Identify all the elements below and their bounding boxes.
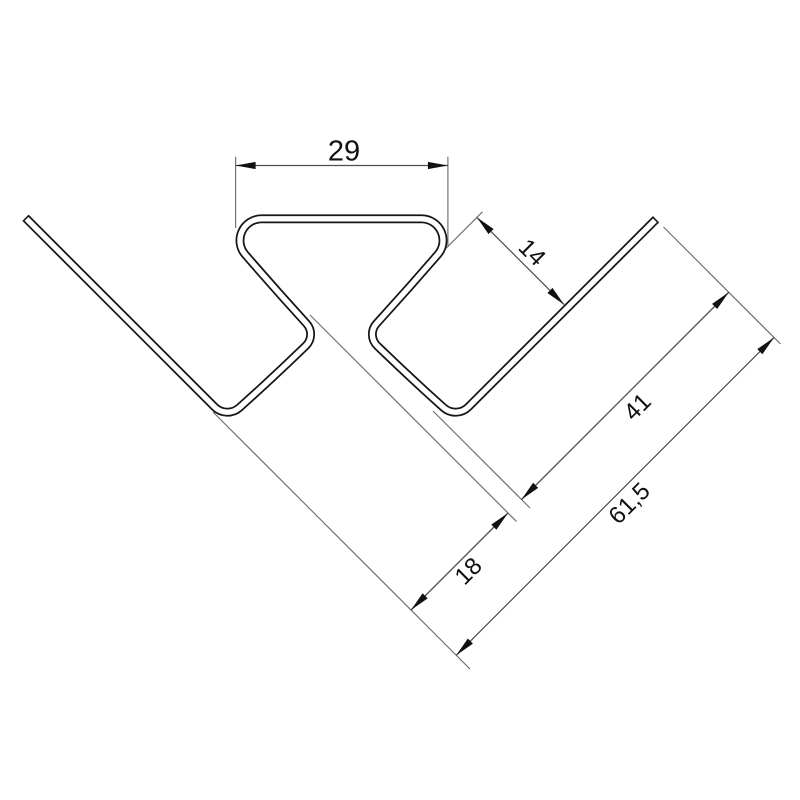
svg-text:18: 18	[450, 552, 488, 590]
svg-text:61,5: 61,5	[604, 478, 656, 530]
svg-text:41: 41	[619, 388, 657, 426]
svg-text:29: 29	[328, 135, 360, 167]
svg-text:14: 14	[513, 234, 551, 272]
